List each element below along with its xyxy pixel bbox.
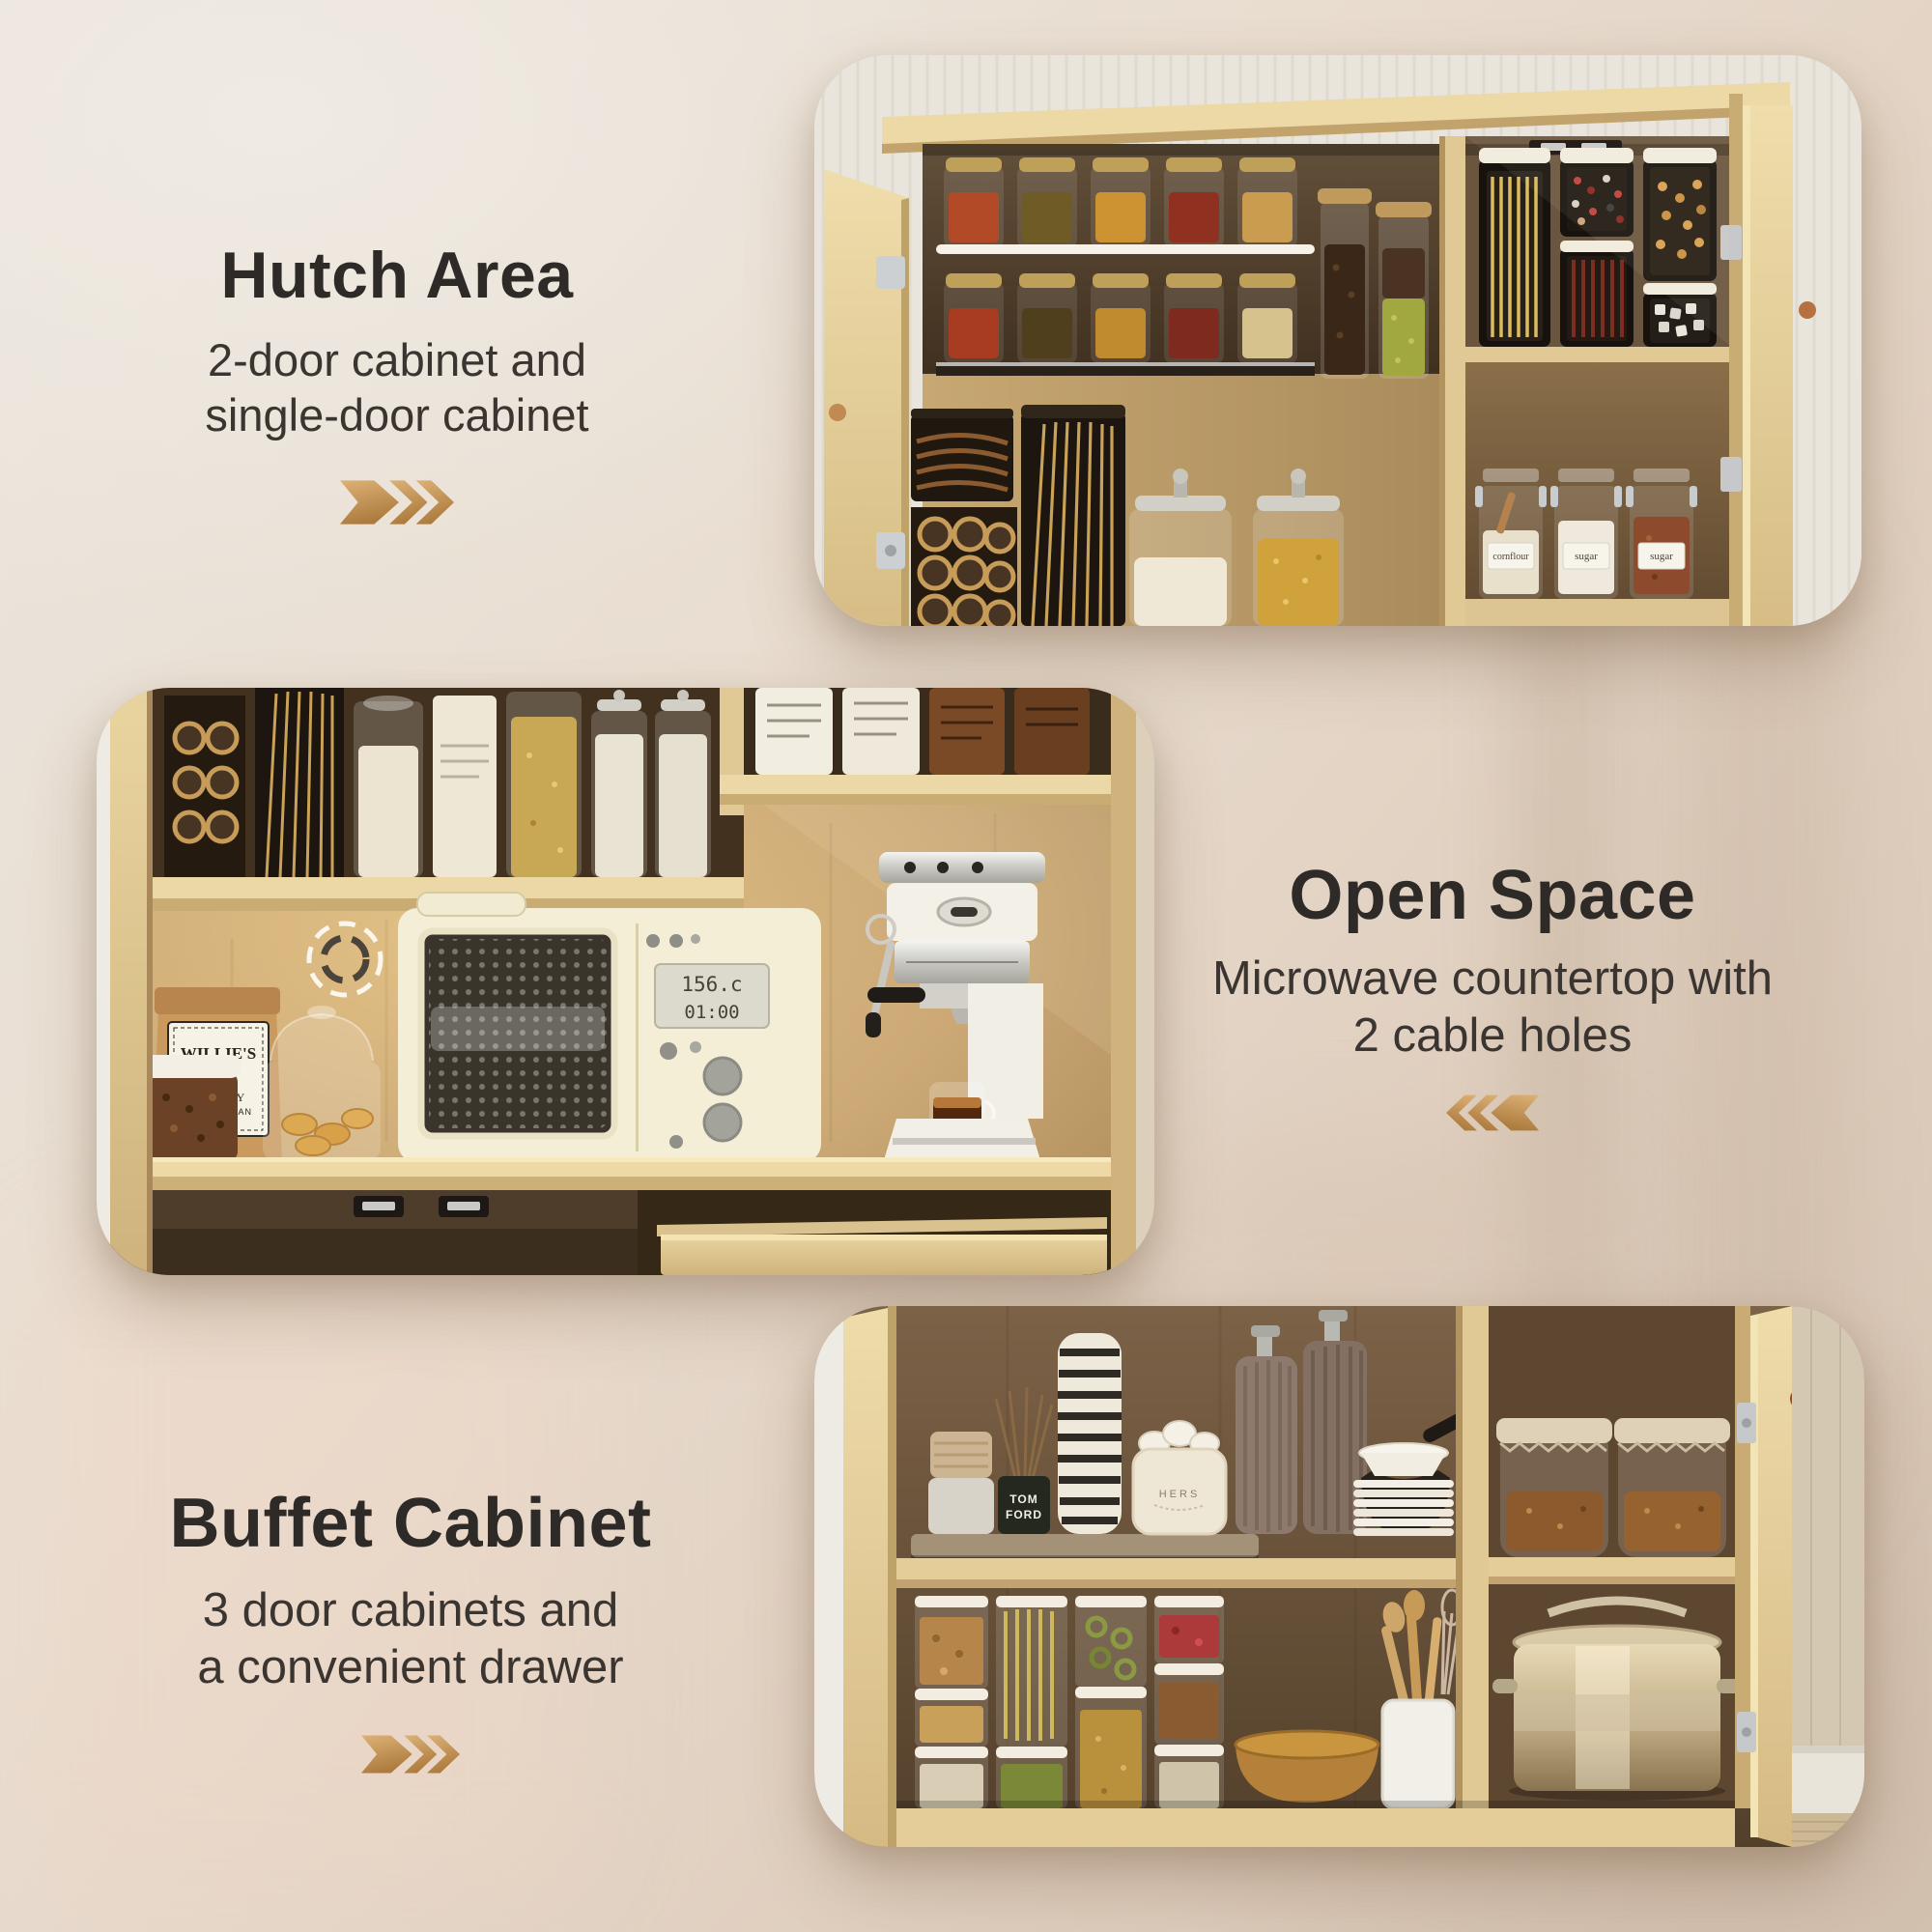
twine-storage-box [911,409,1013,501]
left-cabinet-door [824,169,909,626]
cabinet-base [896,1808,1735,1847]
triple-chevron-right-icon [340,480,454,525]
basket-label: HERS [1159,1489,1201,1500]
open-space-countertop-photo: WILLIE'S REMEDY WHOLE BEAN COFFEE [97,688,1154,1275]
cable-latch [439,1196,489,1217]
coffee-bean-jar [141,1055,241,1161]
product-infographic: cornflour sugar sugar [0,0,1932,1932]
triple-chevron-right-icon [361,1733,460,1776]
round-boxes [928,1432,994,1534]
section-subtitle: Microwave countertop with 2 cable holes [1193,951,1792,1065]
triple-chevron-left-icon [1446,1094,1539,1132]
microwave-display-time: 01:00 [684,1002,739,1023]
clip-jar-cornflour: cornflour [1475,469,1547,599]
section-title: Open Space [1193,856,1792,935]
jar-label: sugar [1575,551,1598,562]
jar-label: sugar [1650,551,1673,562]
cable-latch [354,1196,404,1217]
buffet-cabinet-photo: TOM FORD HERS [814,1306,1864,1847]
plates-stack [1353,1443,1454,1536]
buffet-photo-scene: TOM FORD HERS [814,1306,1864,1847]
section-title: Hutch Area [117,238,677,313]
left-cabinet-door [843,1306,896,1847]
open-space-photo-scene: WILLIE'S REMEDY WHOLE BEAN COFFEE [97,688,1154,1275]
glass-canister-peas [1376,202,1432,379]
jar-label: cornflour [1492,552,1529,562]
bottle-label-line: FORD [1006,1508,1042,1521]
section-hutch-area: Hutch Area 2-door cabinet and single-doo… [117,238,677,529]
microwave-knob [704,1058,741,1094]
striped-vase [1058,1333,1122,1534]
section-open-space: Open Space Microwave countertop with 2 c… [1193,856,1792,1137]
spice-rack-row [936,157,1315,254]
clip-jar-sugar-brown: sugar [1626,469,1697,599]
open-drawer [638,1190,1111,1275]
section-title: Buffet Cabinet [130,1484,691,1563]
bamboo-rings-organizer [911,507,1017,626]
section-buffet-cabinet: Buffet Cabinet 3 door cabinets and a con… [130,1484,691,1780]
eggs-basket: HERS [1133,1421,1226,1534]
spice-rack-row [936,273,1315,376]
shelf-board [896,1558,1456,1579]
shelf-board [1489,1557,1735,1577]
hutch-photo-scene: cornflour sugar sugar [814,55,1861,626]
section-subtitle: 2-door cabinet and single-door cabinet [117,332,677,443]
microwave-knob [704,1104,741,1141]
microwave-display-temp: 156.c [681,973,742,996]
clip-jar-sugar: sugar [1550,469,1622,599]
glass-canister-coffee-beans [1318,188,1372,379]
bottle-label-line: TOM [1009,1492,1037,1506]
spaghetti-container [1021,405,1125,626]
microwave: 156.c 01:00 [398,893,821,1167]
wall-and-floor [1792,1306,1864,1847]
hutch-cabinet-photo: cornflour sugar sugar [814,55,1861,626]
section-subtitle: 3 door cabinets and a convenient drawer [130,1582,691,1696]
